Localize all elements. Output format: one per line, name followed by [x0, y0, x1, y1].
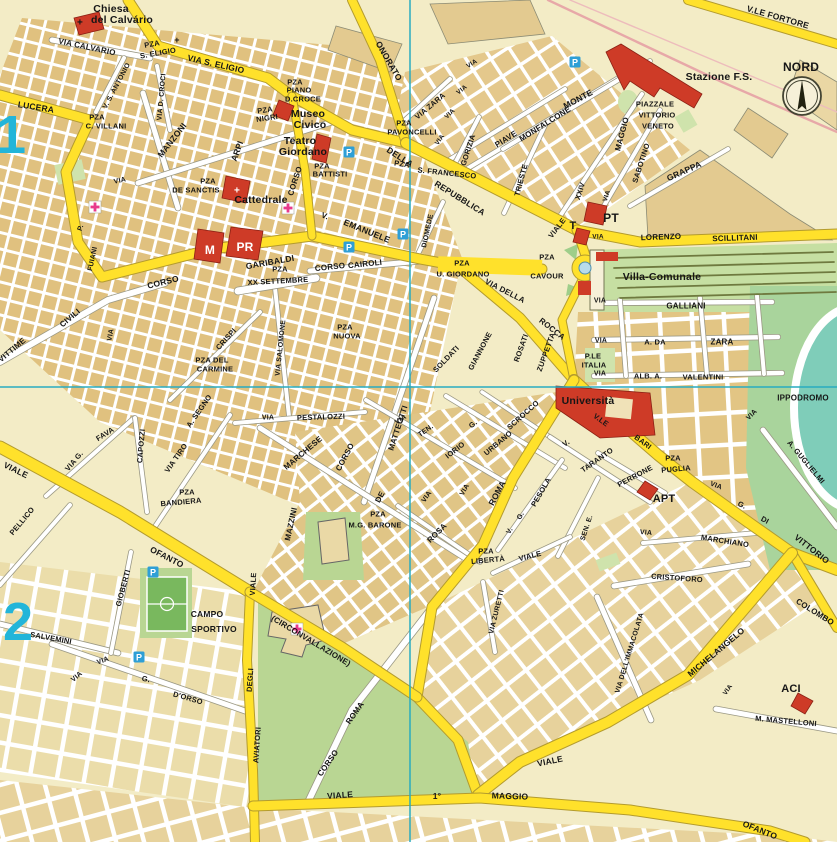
landmarks-14	[578, 281, 591, 295]
map-label: NUOVA	[333, 332, 361, 341]
map-label: +	[77, 18, 83, 29]
map-label: Villa-Comunale	[623, 271, 701, 283]
map-label: M	[205, 243, 215, 257]
map-label: IPPODROMO	[777, 394, 829, 403]
map-label: +	[234, 186, 240, 197]
map-label: DE SANCTIS	[172, 186, 219, 195]
map-label: CAMPO	[191, 609, 224, 619]
sector-number: 2	[3, 592, 33, 652]
svg-text:P: P	[346, 243, 352, 253]
svg-text:P: P	[400, 230, 406, 240]
map-label: T	[570, 220, 577, 232]
map-label: PESTALOZZI	[297, 412, 345, 423]
map-label: SPORTIVO	[191, 624, 237, 634]
parking-icon: P	[344, 147, 355, 158]
map-label: del Calvário	[91, 14, 153, 26]
map-label: LORENZO	[641, 232, 682, 242]
svg-text:P: P	[150, 568, 156, 578]
parking-icon: P	[134, 652, 145, 663]
map-label: SCILLITANI	[712, 233, 758, 244]
map-label: Cattedrale	[234, 194, 287, 206]
map-label: PZA	[454, 259, 470, 268]
map-label: PZA	[89, 113, 105, 122]
map-label: PZA	[370, 510, 386, 519]
map-label: MAGGIO	[492, 790, 529, 801]
map-label: VITTORIO	[639, 111, 676, 120]
svg-text:P: P	[346, 148, 352, 158]
districts-5	[0, 562, 252, 808]
map-label: VIALE	[327, 789, 354, 801]
map-label: VIALE	[248, 572, 259, 596]
hospital-cross-icon	[89, 201, 101, 213]
map-label: PZA	[665, 454, 681, 463]
map-label: PZA	[396, 119, 412, 128]
svg-text:P: P	[572, 58, 578, 68]
map-label: 1°	[433, 791, 442, 801]
parking-icon: P	[148, 567, 159, 578]
parking-icon: P	[570, 57, 581, 68]
map-label: PZA	[478, 547, 494, 556]
map-label: CARMINE	[197, 365, 233, 374]
map-label: PZA	[179, 488, 195, 497]
svg-text:P: P	[136, 653, 142, 663]
map-label: D.CROCE	[285, 95, 321, 104]
map-label: APT	[653, 493, 676, 505]
map-label: VALENTINI	[683, 373, 724, 382]
map-label: ALB. A.	[634, 372, 662, 381]
map-label: VIA	[594, 298, 606, 305]
map-label: Civico	[294, 119, 327, 131]
map-label: P.LE	[585, 352, 602, 361]
map-label: PAVONCELLI	[387, 128, 436, 137]
north-compass-icon	[783, 77, 821, 115]
map-label: VIA	[262, 415, 274, 422]
map-label: M.G. BARONE	[348, 521, 401, 530]
map-label: VIA	[595, 338, 607, 345]
parks-10	[318, 518, 349, 564]
map-label: GALLIANI	[666, 302, 705, 311]
map-label: Stazione F.S.	[686, 71, 753, 83]
map-label: A. DA	[644, 338, 666, 347]
map-label: NORD	[783, 60, 819, 74]
map-label: PR	[236, 240, 253, 254]
map-label: +	[174, 35, 179, 45]
map-label: C. VILLANI	[86, 122, 127, 131]
map-label: ACI	[781, 683, 801, 695]
parking-icon: P	[398, 229, 409, 240]
map-label: PIANO	[287, 86, 312, 95]
foggia-city-map: PPPPPPChiesadel CalvárioVIA CALVARIOPZAS…	[0, 0, 837, 842]
map-label: ITALIA	[582, 361, 607, 370]
map-label: PZA	[200, 177, 216, 186]
sector-number: 1	[0, 105, 26, 165]
map-label: PZA	[337, 323, 353, 332]
map-label: U. GIORDANO	[436, 270, 489, 279]
map-label: CAVOUR	[530, 272, 564, 281]
parking-icon: P	[344, 242, 355, 253]
map-label: DEGLI	[245, 668, 256, 692]
map-label: Giordano	[279, 146, 327, 158]
map-label: BATTISTI	[313, 170, 348, 179]
map-label: ZARA	[710, 338, 733, 347]
map-label: PZA	[272, 265, 288, 274]
map-label: Università	[562, 395, 615, 407]
city-map-viewport: PPPPPPChiesadel CalvárioVIA CALVARIOPZAS…	[0, 0, 837, 842]
landmarks-15	[579, 262, 591, 274]
map-label: PT	[603, 211, 619, 225]
map-label: VIA	[594, 371, 606, 378]
map-label: PIAZZALE	[636, 100, 674, 109]
landmarks-13	[596, 252, 618, 261]
map-label: PZA DEL	[195, 356, 228, 365]
map-label: PZA	[539, 253, 555, 262]
map-label: VIA	[640, 529, 653, 537]
map-label: VENETO	[642, 122, 674, 131]
map-label: VIA	[592, 234, 604, 241]
